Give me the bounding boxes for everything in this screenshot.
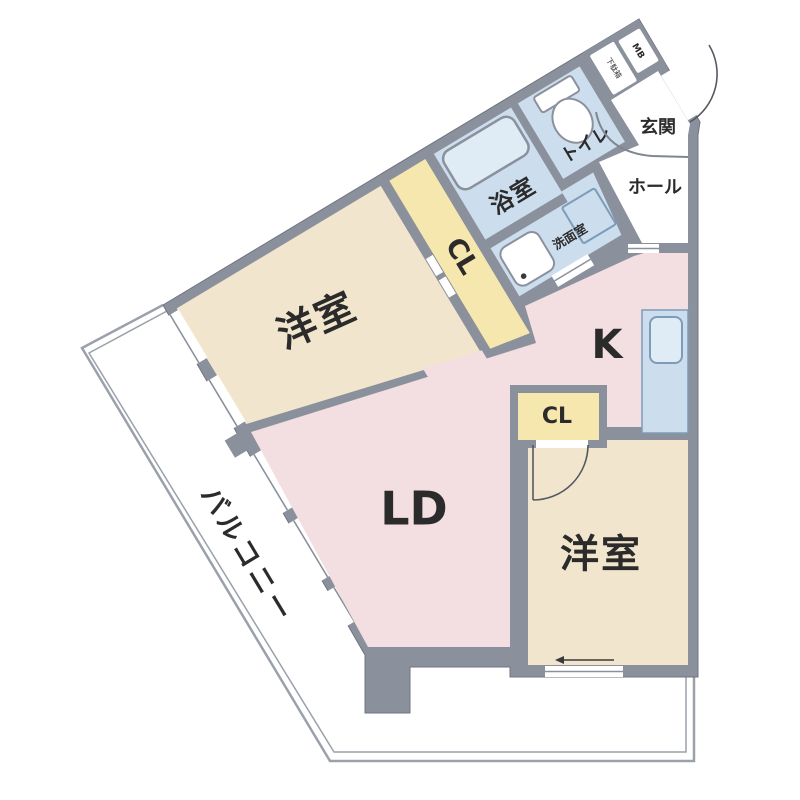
- floor-plan-canvas: 下駄箱 MB CL 浴室 トイレ 洗面室: [0, 0, 800, 800]
- bedroom2-label: 洋室: [560, 533, 642, 578]
- hall-label: ホール: [628, 177, 682, 198]
- entrance-label: 玄関: [640, 116, 676, 138]
- bedroom2-doorway: [536, 440, 588, 448]
- kitchen-sink-icon: [650, 317, 682, 363]
- floor-plan: 下駄箱 MB CL 浴室 トイレ 洗面室: [0, 0, 800, 800]
- closet2-label: CL: [542, 404, 572, 429]
- kitchen-label: K: [592, 322, 625, 368]
- living-label: LD: [380, 482, 448, 536]
